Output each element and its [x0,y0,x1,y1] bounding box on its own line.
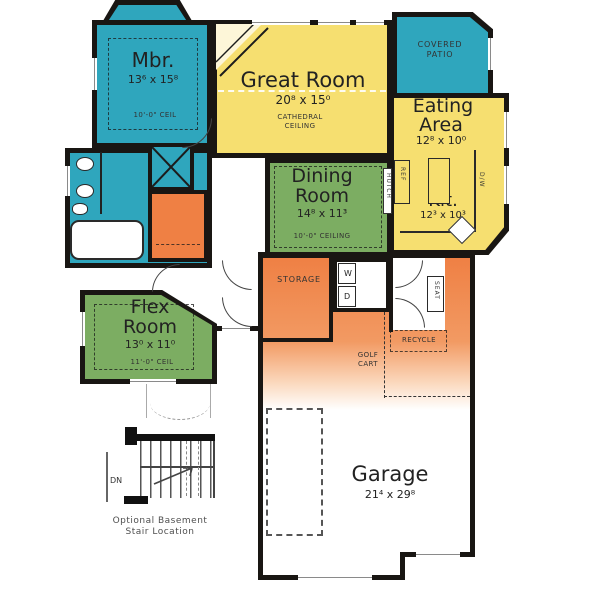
door-arc [152,264,180,292]
window [92,58,97,90]
window [65,166,70,196]
bathtub [70,220,144,260]
stairs-dn-label: DN [110,476,122,485]
garage-bay-outline [266,408,323,536]
stair-caption-line2: Stair Location [126,527,195,538]
flex-ceiling-note: 11'-0" CEIL [131,359,174,366]
window [504,112,509,148]
golfcart-zone-line-v [384,312,385,398]
hutch-label: HUTCH [385,173,391,199]
garage-dims: 21⁴ x 29⁸ [365,489,415,500]
refrigerator-label: REF [399,167,405,181]
sink-2 [76,184,94,198]
golfcart-label-1: GOLF [358,352,378,359]
flex-label-1: Flex [131,298,170,317]
garage-door-2 [416,552,460,557]
window [356,20,384,25]
patio-label-2: PATIO [427,51,454,59]
master-closet [148,190,208,262]
dining-ceiling-note: 10'-0" CEILING [294,233,351,240]
porch-arc [150,386,210,420]
stair-bottom-block [124,496,148,504]
patio-label-1: COVERED [418,41,463,49]
dishwasher-label: D/W [478,172,484,188]
kitchen-counter-right [474,150,476,232]
floor-plan-canvas: Mbr. 13⁶ x 15⁸ 10'-0" CEIL Great Room 20… [0,0,600,600]
window [488,38,493,70]
stair-direction-arrow [150,460,202,488]
toilet [72,203,88,215]
porch-line [210,384,211,418]
kitchen-island [428,158,450,204]
window [80,312,85,346]
wall-segment [263,338,333,342]
eating-dims: 12⁸ x 10⁰ [416,135,466,146]
door-arc [222,297,252,327]
washer-label: W [344,269,352,278]
great-ceiling-note-1: CATHEDRAL [277,114,322,121]
dining-label-1: Dining [291,167,352,186]
storage-label: STORAGE [277,276,321,284]
great-room-name: Great Room [241,70,366,91]
dryer-label: D [344,292,350,301]
refrigerator-box: REF [394,160,410,204]
golfcart-zone-line-h [384,396,470,397]
sink-1 [76,157,94,171]
dryer-box: D [338,286,356,307]
window [504,166,509,204]
dining-dims: 14⁸ x 11³ [297,208,347,219]
eating-label-2: Area [419,116,463,135]
window [252,20,310,25]
garage-door-1 [298,575,372,580]
entry-door-opening [222,326,250,331]
golfcart-label-2: CART [358,361,378,368]
door-arc [222,260,252,290]
wall-segment [258,252,263,580]
mbr-name: Mbr. [132,50,175,70]
washer-box: W [338,263,356,284]
mbr-dims: 13⁶ x 15⁸ [128,74,178,85]
seat-label: SEAT [433,281,439,300]
seat-bench: SEAT [427,276,444,312]
stair-top-wall [133,434,215,441]
stair-caption-line1: Optional Basement [113,516,208,527]
recycle-label: RECYCLE [402,337,436,344]
shower-closet [148,143,194,191]
vanity-counter-line [100,152,102,214]
garage-name: Garage [352,464,429,485]
mbr-ceiling-note: 10'-0" CEIL [134,112,177,119]
stair-wall-block [125,427,137,445]
great-ceiling-note-2: CEILING [285,123,316,130]
flex-dims: 13⁰ x 11⁰ [125,339,175,350]
window [318,20,350,25]
wall-segment [470,252,475,557]
stair-left-rail [106,452,108,502]
closet-shelf-line [156,244,200,245]
porch-line [146,384,147,418]
window [130,379,176,384]
great-room-dims: 20⁸ x 15⁰ [276,94,331,106]
dining-label-2: Room [295,187,349,206]
flex-label-2: Room [123,318,177,337]
shower-x-icon [152,147,190,187]
